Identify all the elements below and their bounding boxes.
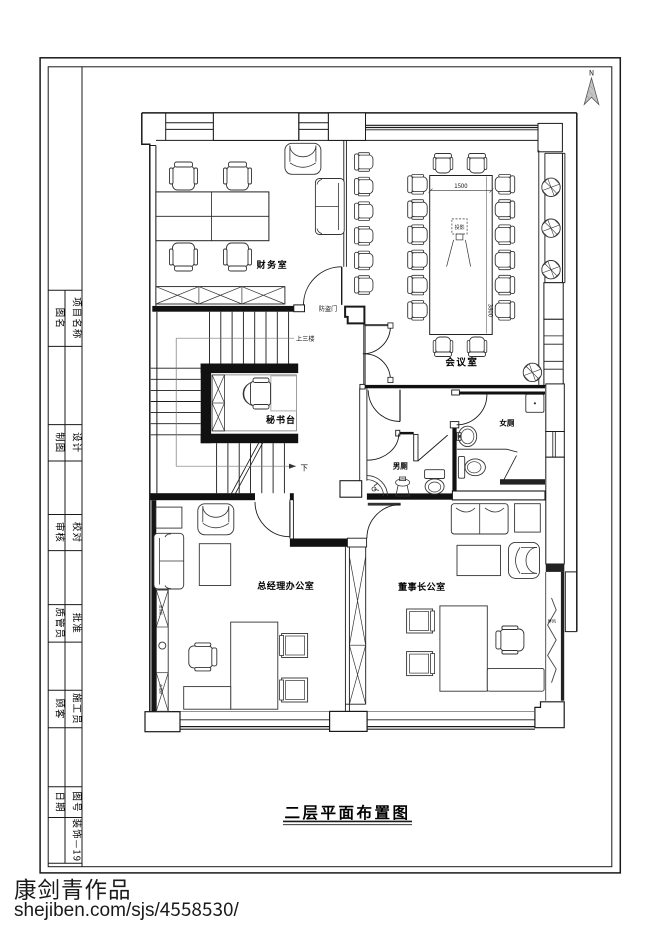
svg-text:上三楼: 上三楼 (296, 334, 315, 343)
svg-text:3800: 3800 (487, 304, 496, 318)
svg-text:衣帽柜: 衣帽柜 (159, 684, 164, 695)
svg-text:shejiben.com/sjs/4558530/: shejiben.com/sjs/4558530/ (14, 895, 240, 922)
svg-text:日期: 日期 (53, 792, 67, 813)
svg-text:制图: 制图 (53, 432, 67, 453)
svg-text:顾客: 顾客 (53, 698, 67, 719)
svg-text:屏风: 屏风 (548, 619, 557, 625)
svg-text:校对: 校对 (70, 522, 84, 543)
svg-text:项目名称: 项目名称 (70, 297, 84, 339)
svg-text:图号: 图号 (70, 792, 84, 813)
svg-text:女厕: 女厕 (499, 418, 514, 429)
svg-text:下: 下 (301, 462, 309, 473)
svg-text:总经理办公室: 总经理办公室 (257, 579, 314, 592)
svg-text:装饰—19: 装饰—19 (70, 819, 84, 863)
svg-text:防盗门: 防盗门 (319, 304, 338, 313)
svg-text:二层平面布置图: 二层平面布置图 (284, 801, 410, 823)
svg-text:批准: 批准 (70, 613, 84, 634)
svg-text:1500: 1500 (454, 181, 468, 190)
svg-text:装饰柜: 装饰柜 (159, 605, 164, 616)
svg-text:图名: 图名 (53, 308, 67, 329)
svg-text:审核: 审核 (53, 522, 67, 543)
svg-text:施工员: 施工员 (70, 693, 84, 725)
svg-text:男厕: 男厕 (393, 460, 408, 471)
svg-text:投影: 投影 (455, 224, 465, 231)
svg-text:财务室: 财务室 (256, 258, 289, 271)
svg-text:秘书台: 秘书台 (266, 413, 296, 426)
svg-text:会议室: 会议室 (445, 355, 478, 369)
svg-text:质管员: 质管员 (53, 607, 67, 639)
svg-text:董事长公室: 董事长公室 (398, 580, 446, 593)
svg-text:设计: 设计 (70, 432, 84, 453)
